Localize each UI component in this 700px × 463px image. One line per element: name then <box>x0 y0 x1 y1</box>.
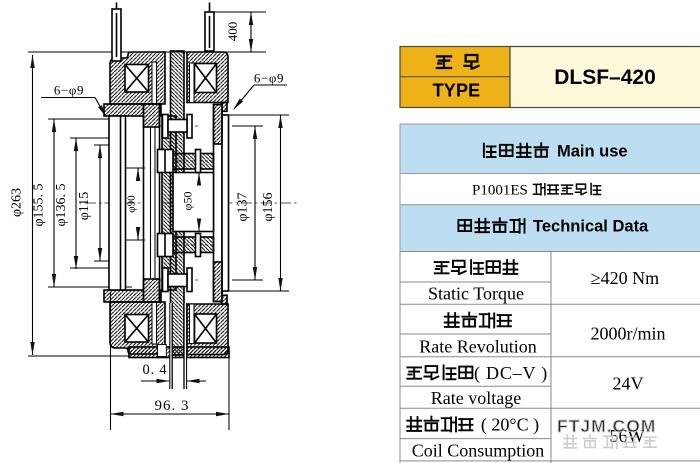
svg-text:φ90: φ90 <box>126 195 138 213</box>
svg-text:φ155. 5: φ155. 5 <box>32 183 47 226</box>
svg-text:Static Torque: Static Torque <box>428 284 524 304</box>
svg-text:φ263: φ263 <box>10 188 25 217</box>
svg-text:TYPE: TYPE <box>433 81 481 101</box>
svg-text:96. 3: 96. 3 <box>155 398 190 414</box>
svg-text:400: 400 <box>225 22 240 42</box>
svg-text:P1001ES: P1001ES <box>472 182 528 198</box>
svg-text:( DC–V ): ( DC–V ) <box>474 363 548 384</box>
svg-text:Technical Data: Technical Data <box>533 217 649 235</box>
svg-text:2000r/min: 2000r/min <box>591 324 666 344</box>
svg-text:6−φ9: 6−φ9 <box>254 71 284 86</box>
svg-text:Rate voltage: Rate voltage <box>431 388 521 408</box>
svg-text:DLSF–420: DLSF–420 <box>554 66 656 89</box>
svg-text:FTJM.COM: FTJM.COM <box>557 416 656 436</box>
svg-text:φ136. 5: φ136. 5 <box>54 183 69 226</box>
svg-text:≥420 Nm: ≥420 Nm <box>591 268 659 288</box>
svg-text:Main use: Main use <box>557 142 628 160</box>
svg-text:φ115: φ115 <box>77 192 92 221</box>
svg-text:( 20°C ): ( 20°C ) <box>481 415 539 436</box>
svg-text:0. 4: 0. 4 <box>143 362 168 378</box>
svg-text:φ156: φ156 <box>261 192 276 221</box>
svg-text:φ50: φ50 <box>181 192 195 211</box>
svg-text:Coil Consumption: Coil Consumption <box>412 441 545 461</box>
svg-text:24V: 24V <box>613 374 644 394</box>
svg-text:6−φ9: 6−φ9 <box>54 83 84 98</box>
svg-text:Rate Revolution: Rate Revolution <box>419 337 536 357</box>
svg-text:φ137: φ137 <box>236 192 251 221</box>
